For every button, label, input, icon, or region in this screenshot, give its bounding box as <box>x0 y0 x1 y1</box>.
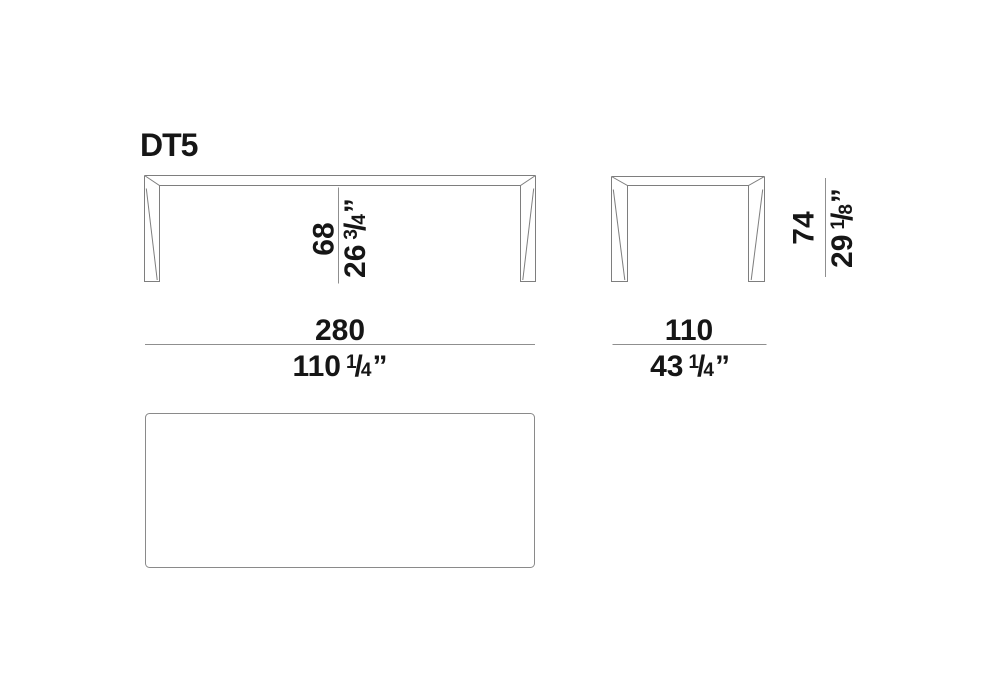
depth-imperial-value: 431/4” <box>650 352 730 382</box>
side-view <box>612 177 765 282</box>
width-imperial-value: 1101/4” <box>293 352 388 382</box>
inch-mark: ” <box>826 188 859 203</box>
clearance-imperial-value: 263/4” <box>341 198 371 278</box>
imperial-whole: 110 <box>293 350 341 383</box>
imperial-whole: 29 <box>826 235 859 268</box>
side-right-leg-crease <box>751 190 763 281</box>
fraction-denominator: 8 <box>836 204 857 215</box>
front-right-leg-crease <box>523 189 534 281</box>
front-left-leg-crease <box>146 189 157 281</box>
fraction-denominator: 4 <box>703 360 714 381</box>
inch-mark: ” <box>372 350 387 383</box>
front-tabletop-underside <box>145 176 536 186</box>
dimension-lines <box>145 178 826 345</box>
side-left-leg-crease <box>613 190 625 281</box>
side-tabletop-underside <box>612 177 765 186</box>
top-view <box>146 414 535 568</box>
clearance-metric-value: 68 <box>310 222 340 255</box>
diagram-canvas: DT5 <box>0 0 1000 700</box>
depth-metric-value: 110 <box>665 316 713 346</box>
height-imperial-value: 291/8” <box>828 188 858 268</box>
dimension-drawing-svg <box>0 0 1000 700</box>
inch-mark: ” <box>339 198 372 213</box>
imperial-whole: 43 <box>650 350 683 383</box>
top-view-tabletop-outline <box>146 414 535 568</box>
height-metric-value: 74 <box>790 211 820 244</box>
inch-mark: ” <box>715 350 730 383</box>
imperial-whole: 26 <box>339 245 372 278</box>
fraction-denominator: 4 <box>361 360 372 381</box>
width-metric-value: 280 <box>315 316 365 346</box>
fraction-denominator: 4 <box>349 214 370 225</box>
